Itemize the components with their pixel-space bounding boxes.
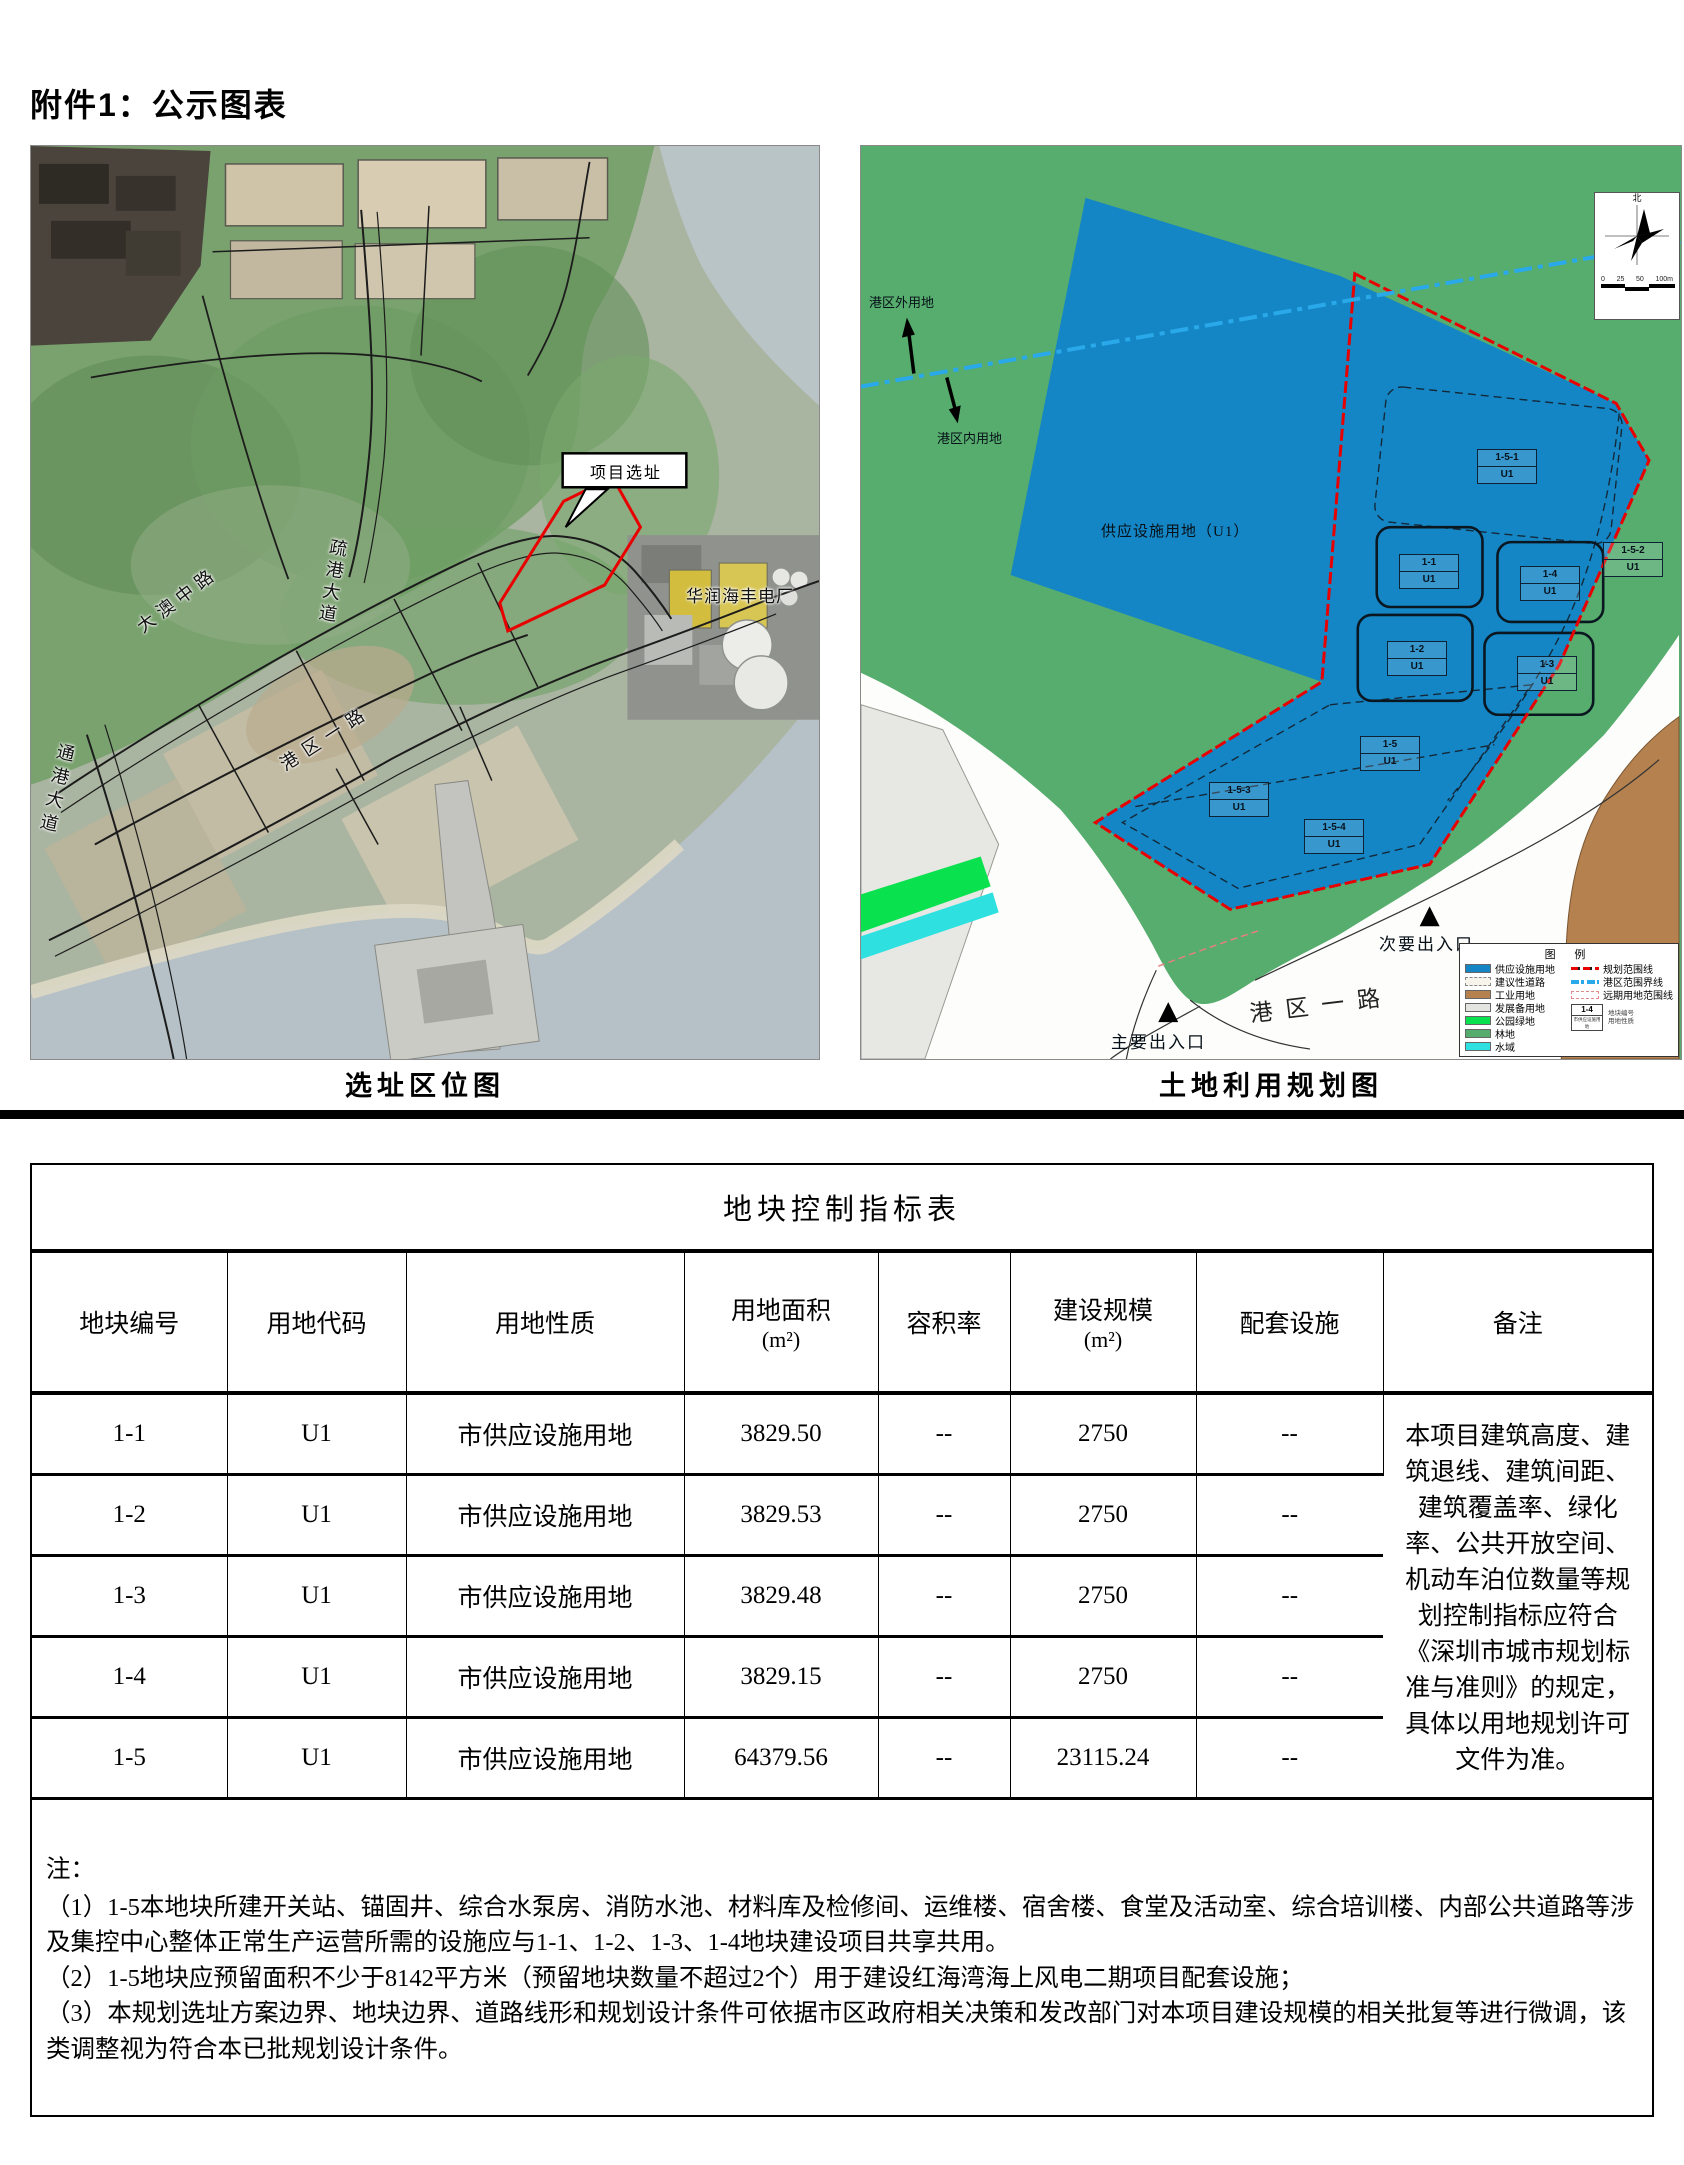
north-arrow-box: 北 0 25 50 100m [1594,192,1680,320]
project-site-callout: 项目选址 [566,455,686,487]
site-location-map-canvas: 项目选址 大澳中路 疏港大道 通港大道 港区一路 华润海丰电厂 [30,145,820,1060]
sample-plot-box: 1-4 市供应设施用地 [1571,1004,1603,1031]
plot-label-1-5-2: 1-5-2 U1 [1603,542,1663,577]
section-divider [0,1110,1684,1119]
note-item-3: （3）本规划选址方案边界、地块边界、道路线形和规划设计条件可依据市区政府相关决策… [46,1996,1636,2067]
supply-area-label: 供应设施用地（U1） [1101,520,1249,541]
plot-control-table-box: 地块控制指标表 地块编号 用地代码 用地性质 用地面积(m²) 容积率 建设规模… [30,1163,1654,2117]
planning-boundary-swatch [1571,967,1599,970]
legend-plot-sample: 1-4 市供应设施用地 地块编号 用地性质 [1571,1004,1673,1031]
right-map-caption: 土地利用规划图 [860,1060,1682,1107]
header-land-code: 用地代码 [227,1253,406,1393]
note-item-1: （1）1-5本地块所建开关站、锚固井、综合水泵房、消防水池、材料库及检修间、运维… [46,1890,1636,1961]
plot-label-1-1: 1-1 U1 [1399,554,1459,589]
scale-tick: 50 [1636,276,1644,283]
plot-label-1-5: 1-5 U1 [1360,736,1420,771]
park-green-swatch [1465,1016,1491,1025]
document-page: 附件1：公示图表 [0,0,1684,2165]
proposed-road-swatch [1465,977,1491,986]
page-title: 附件1：公示图表 [30,86,288,124]
main-entrance-label: 主要出入口 [1111,1028,1206,1053]
legend-line-items: 规划范围线 港区范围界线 远期用地范围线 1-4 市供应设施用地 地块编号 用地… [1571,962,1673,1053]
legend-title: 图 例 [1465,946,1673,962]
outside-port-label: 港区外用地 [869,292,934,311]
forest-land-swatch [1465,1029,1491,1038]
north-label: 北 [1595,193,1679,203]
note-item-2: （2）1-5地块应预留面积不少于8142平方米（预留地块数量不超过2个）用于建设… [46,1961,1636,1997]
header-land-area: 用地面积(m²) [684,1253,878,1393]
table-title: 地块控制指标表 [32,1165,1652,1253]
scale-bar [1601,284,1673,292]
port-boundary-swatch [1571,980,1599,984]
scale-bar-numbers: 0 25 50 100m [1595,276,1679,283]
remark-cell: 本项目建筑高度、建筑退线、建筑间距、建筑覆盖率、绿化率、公共开放空间、机动车泊位… [1383,1393,1652,1799]
scale-tick: 100m [1655,276,1673,283]
inside-port-label: 港区内用地 [937,428,1002,447]
industrial-land-swatch [1465,990,1491,999]
land-use-plan-map: 港区外用地 港区内用地 供应设施用地（U1） 港区一路 主要出入口 次要出入口 … [860,145,1682,1107]
notes-label: 注： [46,1852,1636,1888]
plot-label-1-5-1: 1-5-1 U1 [1477,449,1537,484]
scale-tick: 25 [1617,276,1625,283]
water-swatch [1465,1042,1491,1051]
supply-land-swatch [1465,964,1491,973]
table-notes: 注： （1）1-5本地块所建开关站、锚固井、综合水泵房、消防水池、材料库及检修间… [32,1800,1652,2067]
legend-item: 林地 [1465,1027,1565,1040]
power-plant-label: 华润海丰电厂 [686,582,794,607]
map-legend: 图 例 供应设施用地 建议性道路 工业用地 发展备用地 公园绿地 林地 水域 规… [1459,943,1679,1057]
header-land-nature: 用地性质 [406,1253,684,1393]
plot-label-1-5-4: 1-5-4 U1 [1304,819,1364,854]
plot-label-1-2: 1-2 U1 [1387,641,1447,676]
plot-control-table: 地块编号 用地代码 用地性质 用地面积(m²) 容积率 建设规模(m²) 配套设… [32,1253,1652,1800]
compass-icon [1600,203,1674,269]
header-plot-id: 地块编号 [32,1253,227,1393]
site-location-map: 项目选址 大澳中路 疏港大道 通港大道 港区一路 华润海丰电厂 选址区位图 [30,145,820,1107]
legend-item: 公园绿地 [1465,1014,1565,1027]
land-use-plan-canvas: 港区外用地 港区内用地 供应设施用地（U1） 港区一路 主要出入口 次要出入口 … [860,145,1682,1060]
scale-tick: 0 [1601,276,1605,283]
plot-label-1-4: 1-4 U1 [1520,566,1580,601]
table-header-row: 地块编号 用地代码 用地性质 用地面积(m²) 容积率 建设规模(m²) 配套设… [32,1253,1652,1393]
table-row: 1-1 U1 市供应设施用地 3829.50 -- 2750 -- 本项目建筑高… [32,1393,1652,1475]
header-build-scale: 建设规模(m²) [1010,1253,1196,1393]
legend-area-items: 供应设施用地 建议性道路 工业用地 发展备用地 公园绿地 林地 水域 [1465,962,1565,1053]
plan-drawing [861,146,1681,1059]
plot-label-1-5-3: 1-5-3 U1 [1209,782,1269,817]
legend-item: 远期用地范围线 [1571,988,1673,1001]
sample-plot-notes: 地块编号 用地性质 [1608,1010,1634,1026]
header-facilities: 配套设施 [1196,1253,1383,1393]
left-map-caption: 选址区位图 [30,1060,820,1107]
header-remark: 备注 [1383,1253,1652,1393]
legend-item: 水域 [1465,1040,1565,1053]
plot-label-1-3: 1-3 U1 [1517,656,1577,691]
reserve-land-swatch [1465,1003,1491,1012]
future-land-boundary-swatch [1571,991,1599,999]
header-far: 容积率 [878,1253,1010,1393]
